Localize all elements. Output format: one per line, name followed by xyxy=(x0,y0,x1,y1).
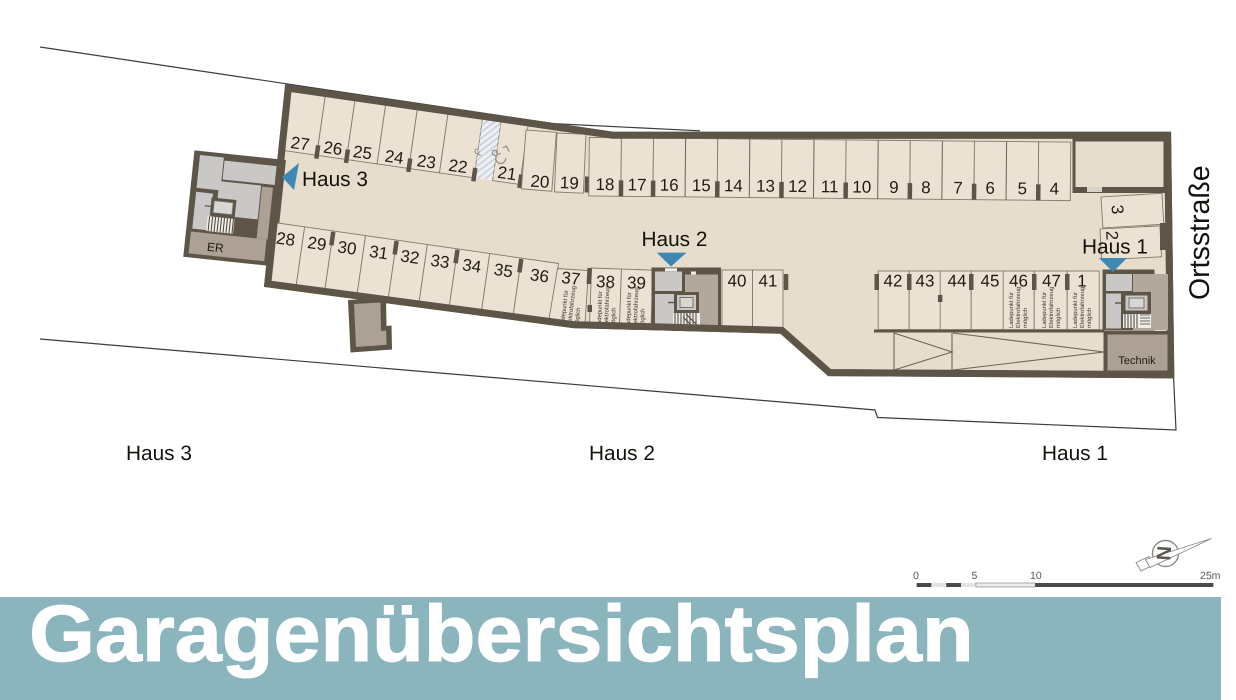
svg-text:44: 44 xyxy=(948,272,967,291)
svg-text:Technik: Technik xyxy=(1118,355,1156,367)
svg-text:7: 7 xyxy=(953,178,963,197)
svg-text:Haus 3: Haus 3 xyxy=(302,168,368,191)
svg-text:Haus 3: Haus 3 xyxy=(126,442,192,465)
svg-text:10: 10 xyxy=(852,178,871,197)
svg-text:33: 33 xyxy=(429,251,450,273)
svg-text:ER: ER xyxy=(206,240,224,256)
svg-text:11: 11 xyxy=(821,177,839,196)
svg-text:12: 12 xyxy=(788,177,807,196)
svg-text:18: 18 xyxy=(595,175,614,194)
svg-text:16: 16 xyxy=(660,176,679,195)
svg-text:14: 14 xyxy=(724,176,743,195)
svg-text:Ladepunkt für: Ladepunkt für xyxy=(1072,292,1079,328)
svg-text:24: 24 xyxy=(384,147,405,169)
svg-text:Elektrofahrzeug: Elektrofahrzeug xyxy=(1079,287,1086,328)
svg-text:Elektrofahrzeug: Elektrofahrzeug xyxy=(1015,287,1022,328)
svg-text:25: 25 xyxy=(352,142,373,164)
svg-text:Elektrofahrzeug: Elektrofahrzeug xyxy=(632,287,640,328)
svg-text:8: 8 xyxy=(921,178,931,197)
svg-text:10: 10 xyxy=(1030,570,1042,582)
svg-text:Ladepunkt für: Ladepunkt für xyxy=(1041,292,1048,328)
svg-text:42: 42 xyxy=(884,272,903,291)
svg-text:34: 34 xyxy=(461,255,482,277)
svg-text:möglich: möglich xyxy=(1055,308,1062,328)
svg-text:6: 6 xyxy=(985,179,995,198)
svg-text:23: 23 xyxy=(416,151,437,173)
svg-text:28: 28 xyxy=(275,229,296,251)
svg-text:19: 19 xyxy=(559,173,579,193)
svg-text:31: 31 xyxy=(368,242,389,264)
svg-text:Elektrofahrzeug: Elektrofahrzeug xyxy=(603,286,611,327)
svg-text:3: 3 xyxy=(1108,204,1128,215)
svg-text:N: N xyxy=(1152,545,1175,561)
svg-text:43: 43 xyxy=(916,272,935,291)
svg-text:Haus 1: Haus 1 xyxy=(1082,236,1148,259)
svg-text:Ladepunkt für: Ladepunkt für xyxy=(1008,292,1015,328)
svg-text:Ortsstraße: Ortsstraße xyxy=(1184,165,1216,300)
svg-text:25m: 25m xyxy=(1200,570,1221,582)
svg-text:möglich: möglich xyxy=(1086,308,1093,328)
svg-text:36: 36 xyxy=(529,265,550,287)
svg-text:13: 13 xyxy=(756,177,775,196)
svg-text:Haus 2: Haus 2 xyxy=(589,442,655,465)
svg-text:5: 5 xyxy=(1017,179,1027,198)
svg-text:22: 22 xyxy=(447,156,468,178)
svg-text:30: 30 xyxy=(336,237,357,259)
svg-text:45: 45 xyxy=(981,272,1000,291)
svg-text:0: 0 xyxy=(913,570,919,582)
svg-text:32: 32 xyxy=(399,246,420,268)
svg-text:5: 5 xyxy=(972,570,978,582)
svg-text:29: 29 xyxy=(306,233,327,255)
svg-text:35: 35 xyxy=(493,260,514,282)
svg-text:26: 26 xyxy=(322,138,343,160)
svg-text:20: 20 xyxy=(530,172,550,192)
svg-text:41: 41 xyxy=(759,272,778,291)
svg-text:4: 4 xyxy=(1050,179,1060,198)
svg-text:40: 40 xyxy=(728,272,747,291)
svg-text:Garagenübersichtsplan: Garagenübersichtsplan xyxy=(29,589,974,678)
svg-text:17: 17 xyxy=(628,175,647,194)
svg-text:möglich: möglich xyxy=(1022,308,1029,328)
svg-text:15: 15 xyxy=(692,176,711,195)
svg-text:Haus 2: Haus 2 xyxy=(642,228,708,251)
svg-text:Haus 1: Haus 1 xyxy=(1042,442,1108,465)
svg-text:9: 9 xyxy=(889,178,899,197)
svg-text:Elektrofahrzeug: Elektrofahrzeug xyxy=(1048,287,1055,328)
svg-text:27: 27 xyxy=(289,133,310,155)
svg-text:21: 21 xyxy=(496,163,517,185)
